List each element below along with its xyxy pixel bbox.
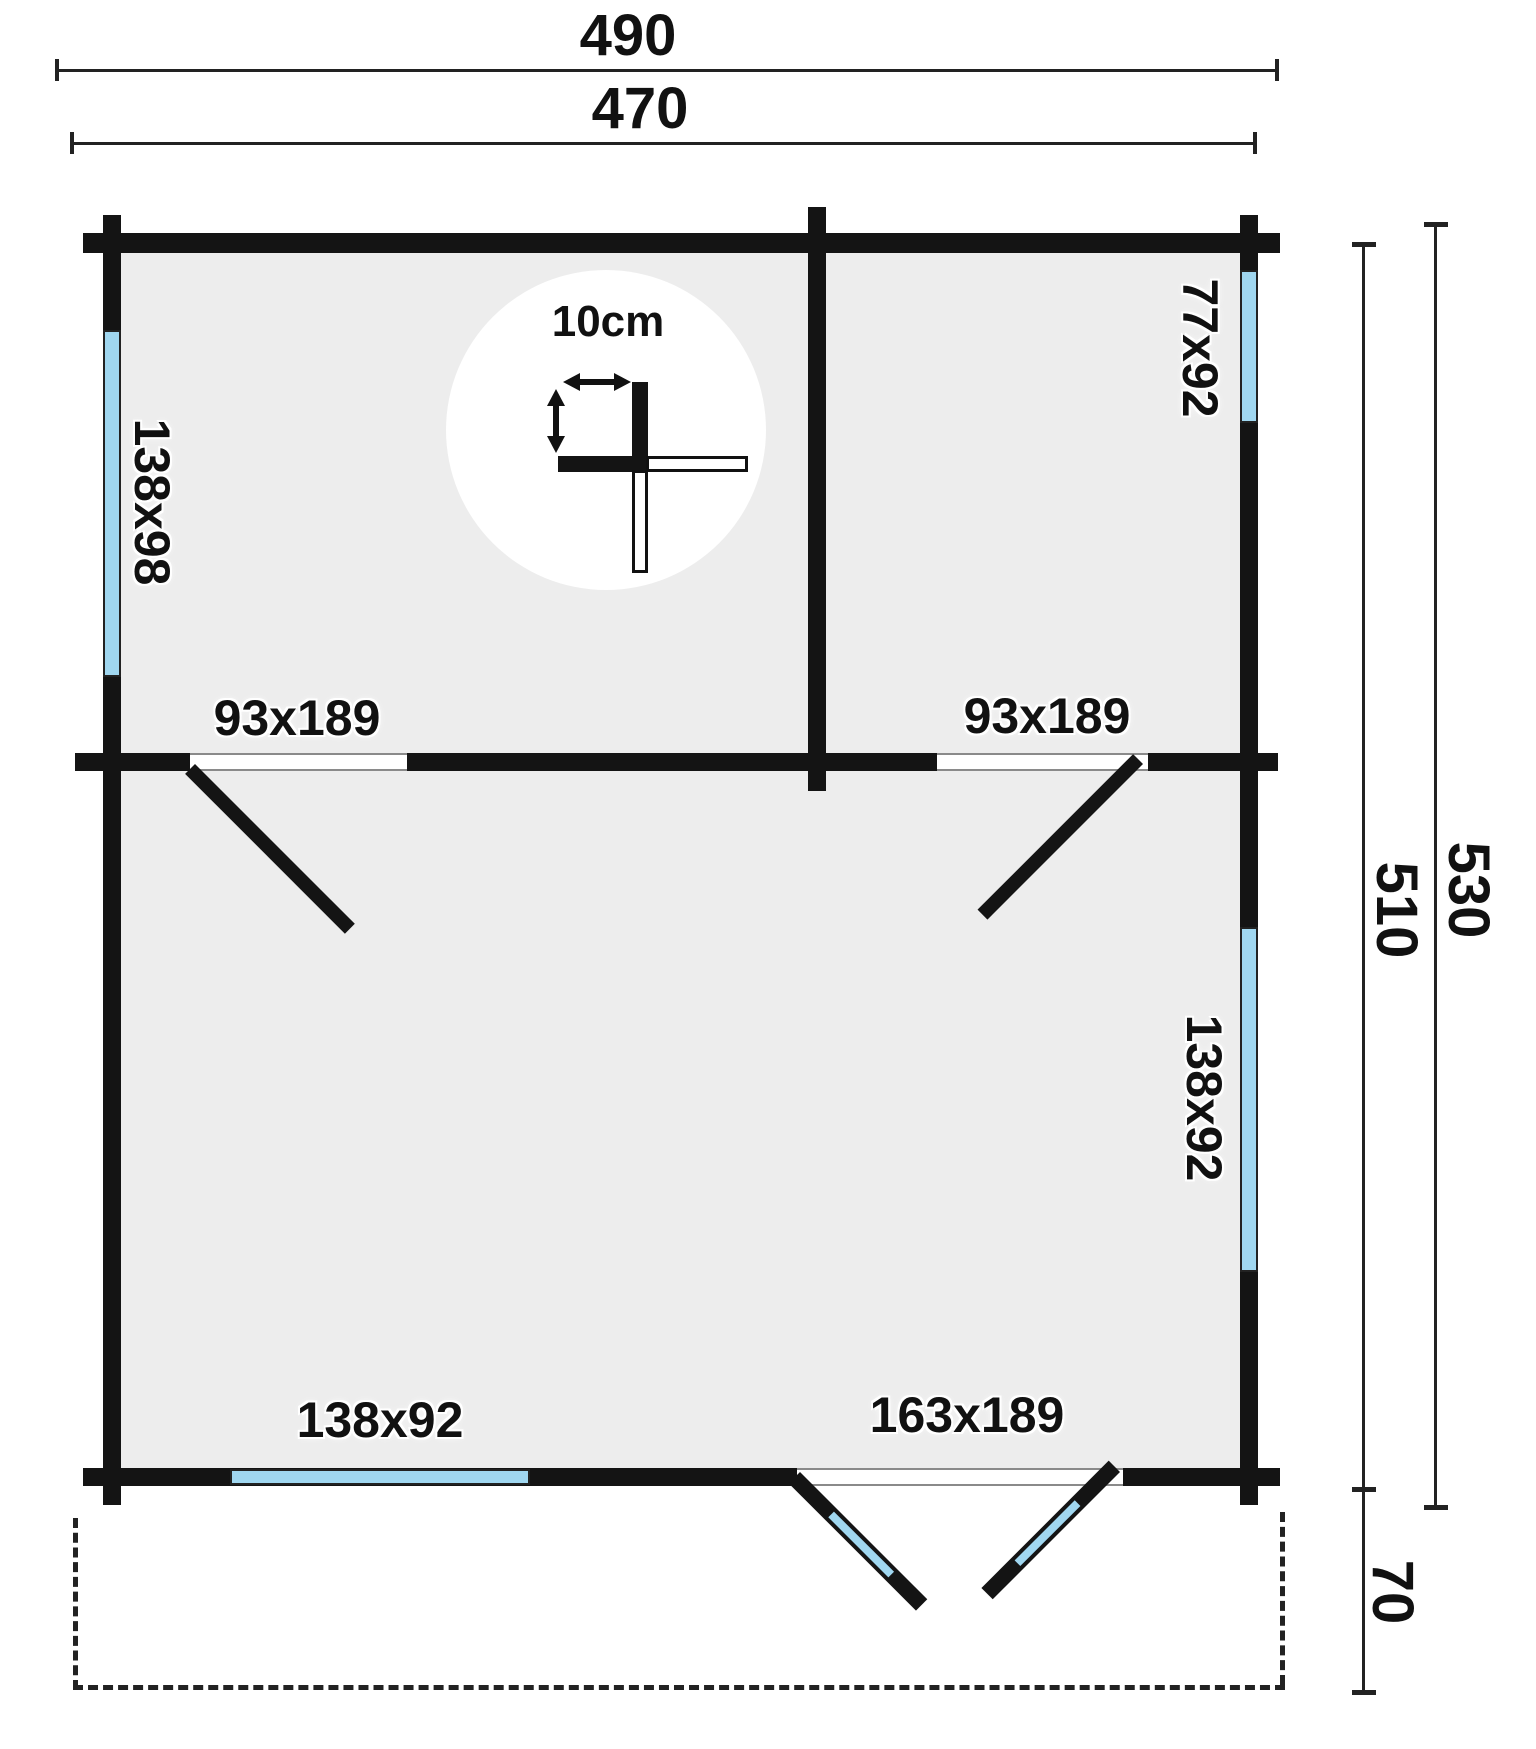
wall-middle-segment-center [407,753,937,771]
window-bottom [230,1469,530,1485]
dim-tick [55,59,59,81]
wall-thickness-label: 10cm [552,300,665,344]
dim-line-width-inner [72,142,1255,145]
door-label-interior-left: 93x189 [214,693,381,743]
terrace-dashed-right [1280,1512,1285,1685]
dim-tick [1352,242,1376,247]
terrace-dashed-bottom [73,1685,1285,1690]
dim-tick [1275,59,1279,81]
wall-middle-segment-right [1148,753,1278,771]
window-left [103,330,121,677]
dim-label-depth-outer: 530 [1439,842,1497,939]
window-label-left: 138x98 [127,419,177,586]
floor-plan: 490 470 530 510 70 10cm 138x98 77x92 138… [0,0,1536,1749]
dim-label-width-outer: 490 [580,7,677,65]
door-leaf-exterior-left [789,1472,928,1611]
terrace-dashed-left [73,1518,78,1690]
door-label-interior-right: 93x189 [964,691,1131,741]
dim-tick [70,132,74,154]
door-glass-left [828,1512,894,1578]
door-label-exterior-double: 163x189 [870,1390,1065,1440]
dim-label-depth-inner: 510 [1367,862,1425,959]
window-label-top-right: 77x92 [1175,278,1225,417]
wall-top [83,233,1280,253]
wall-middle-segment-left [75,753,190,771]
dim-tick [1352,1690,1376,1695]
window-top-right [1240,270,1258,423]
window-right [1240,927,1258,1272]
dim-line-depth-inner [1362,244,1365,1693]
window-label-right: 138x92 [1179,1015,1229,1182]
door-opening-interior-right [937,753,1148,771]
dim-label-terrace-depth: 70 [1363,1560,1421,1625]
door-opening-exterior-double [797,1468,1123,1486]
window-label-bottom: 138x92 [297,1395,464,1445]
door-glass-right [1015,1500,1081,1566]
dim-tick [1253,132,1257,154]
dim-tick [1352,1487,1376,1492]
dim-tick [1424,1505,1448,1510]
dim-tick [1424,222,1448,227]
door-opening-interior-left [190,753,407,771]
wall-partition-vertical [808,207,826,791]
dim-line-width-outer [57,69,1277,72]
dim-label-width-inner: 470 [592,80,689,138]
